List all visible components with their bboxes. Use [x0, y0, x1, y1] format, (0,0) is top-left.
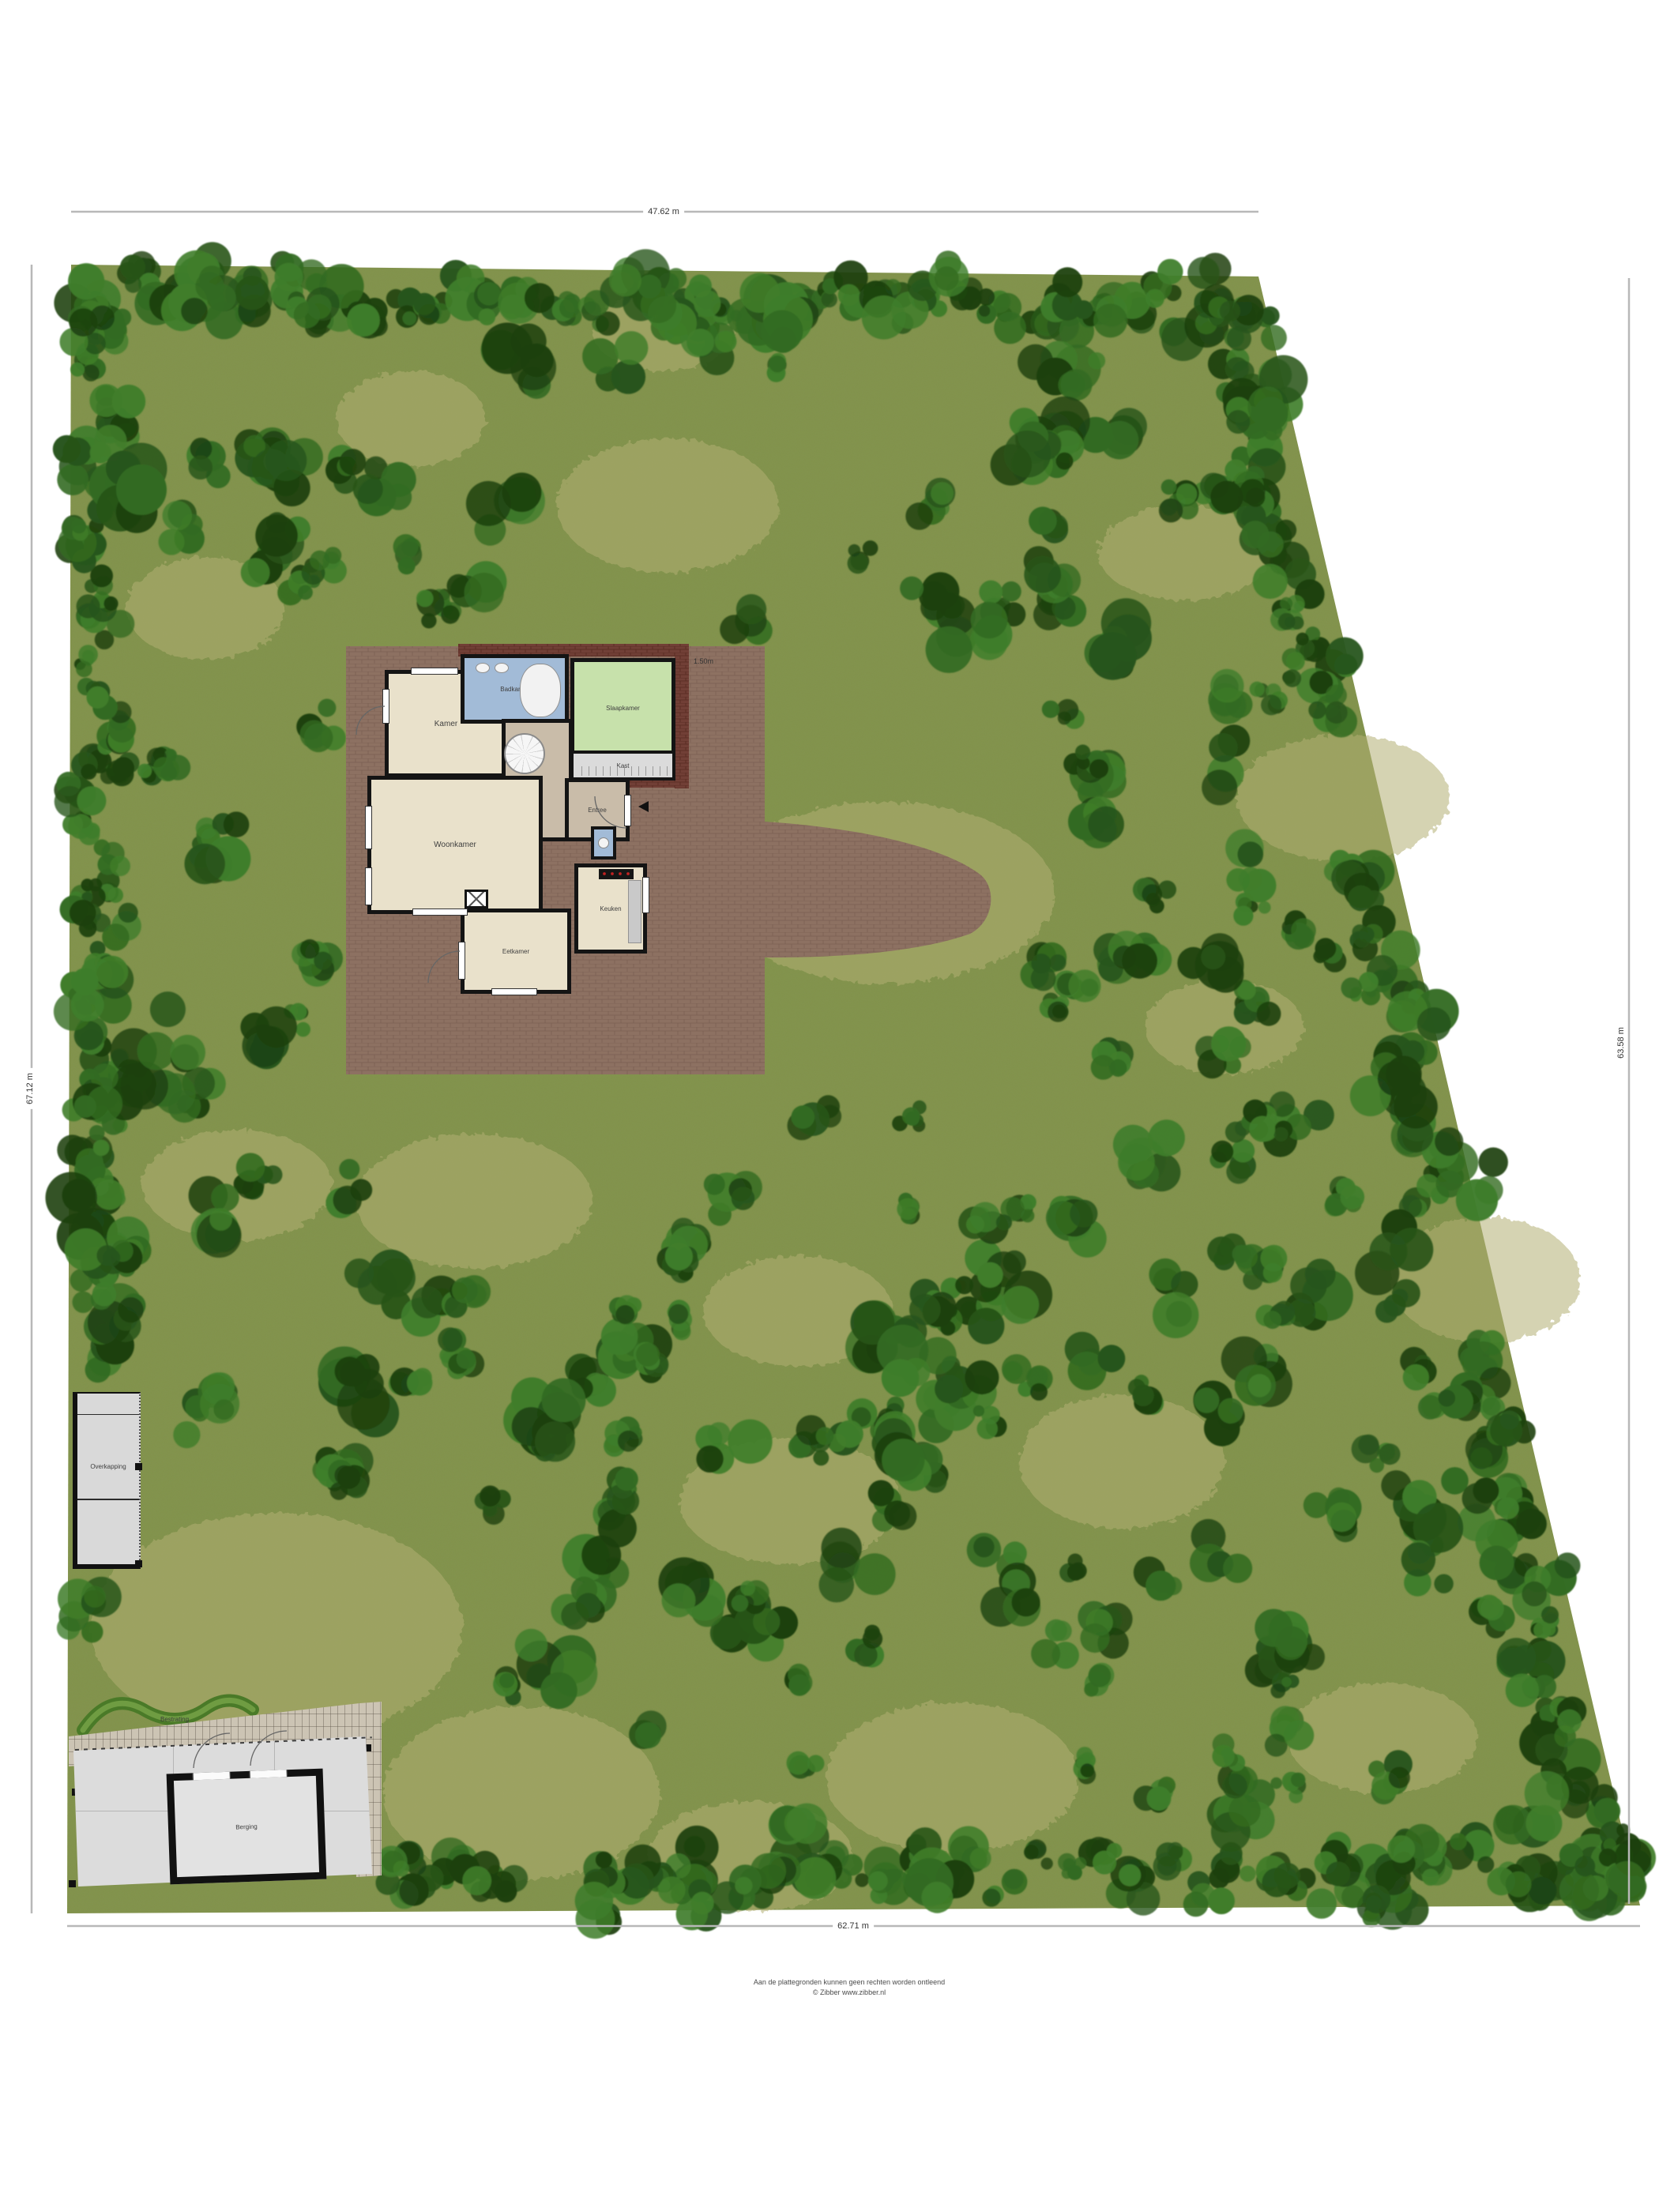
window — [412, 908, 468, 916]
door-opening — [193, 1772, 231, 1781]
disclaimer-line1: Aan de plattegronden kunnen geen rechten… — [754, 1977, 945, 1988]
terrace-extension — [765, 822, 991, 957]
bestrating-label: Bestrating — [160, 1716, 189, 1723]
post-marker — [135, 1560, 142, 1567]
roof-edge-right — [675, 644, 689, 788]
house-floorplan: Kamer Badkamer Slaapkamer Kast Entree Wo… — [340, 640, 1003, 1082]
front-door-opening — [624, 795, 631, 826]
window — [642, 877, 649, 913]
dimension-label-left: 67.12 m — [25, 1068, 35, 1109]
door-opening — [458, 942, 465, 980]
roof-dimension-annotation: 1.50m — [694, 657, 713, 665]
stove-icon — [599, 869, 634, 879]
room-toilet — [591, 826, 616, 860]
sink-icon — [476, 663, 490, 673]
site-plan-page: 47.62 m 62.71 m 67.12 m 63.58 m — [0, 0, 1659, 2212]
door-opening — [250, 1770, 288, 1778]
berging-label: Berging — [235, 1823, 258, 1830]
room-woonkamer: Woonkamer — [367, 776, 543, 914]
divider — [77, 1414, 139, 1415]
sink-icon — [495, 663, 509, 673]
overkapping-structure: Overkapping — [73, 1392, 141, 1569]
garage-area: Bestrating Berging — [67, 1689, 383, 1896]
window — [365, 867, 372, 905]
room-label: Entree — [588, 807, 607, 814]
bathtub-icon — [520, 664, 561, 717]
room-kast: Kast — [570, 750, 675, 781]
kitchen-counter-icon — [628, 880, 641, 943]
room-eetkamer: Eetkamer — [461, 908, 571, 994]
room-badkamer: Badkamer — [461, 654, 569, 724]
overkapping-label: Overkapping — [77, 1463, 139, 1470]
wardrobe-icon — [575, 766, 671, 776]
post-marker — [135, 1463, 142, 1470]
dimension-label-right: 63.58 m — [1616, 1022, 1626, 1063]
fireplace-icon — [465, 890, 488, 908]
room-label: Woonkamer — [434, 841, 476, 849]
toilet-icon — [598, 837, 609, 848]
room-slaapkamer: Slaapkamer — [570, 658, 675, 758]
room-label: Kamer — [434, 720, 457, 728]
divider — [77, 1499, 139, 1500]
post-marker — [69, 1880, 76, 1887]
window — [491, 988, 537, 995]
spiral-staircase-icon — [504, 733, 545, 774]
window — [411, 668, 458, 675]
disclaimer-line2: © Zibber www.zibber.nl — [754, 1988, 945, 1998]
room-label: Slaapkamer — [606, 705, 640, 712]
window — [382, 689, 389, 724]
window — [365, 806, 372, 849]
entrance-arrow-icon — [638, 801, 649, 812]
dimension-label-bottom: 62.71 m — [833, 1921, 874, 1931]
room-label: Keuken — [600, 905, 621, 912]
dimension-label-top: 47.62 m — [643, 207, 684, 216]
berging-building: Berging — [167, 1769, 327, 1885]
disclaimer: Aan de plattegronden kunnen geen rechten… — [754, 1977, 945, 1998]
room-keuken: Keuken — [574, 863, 647, 954]
room-label: Eetkamer — [502, 948, 529, 955]
